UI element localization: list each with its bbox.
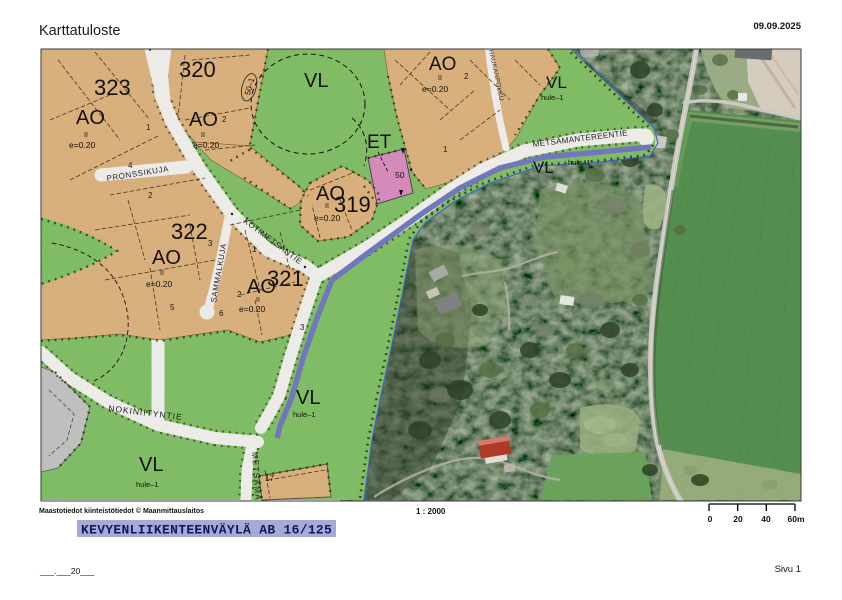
svg-text:AO: AO <box>152 247 181 269</box>
svg-text:VL: VL <box>139 454 163 476</box>
svg-text:3: 3 <box>208 239 213 248</box>
svg-text:17: 17 <box>265 474 274 483</box>
svg-text:hule–1: hule–1 <box>293 410 316 419</box>
svg-text:VL: VL <box>304 70 328 92</box>
svg-text:II: II <box>201 132 205 139</box>
svg-text:6: 6 <box>219 309 224 318</box>
svg-text:___.___20___: ___.___20___ <box>39 566 95 576</box>
svg-text:1: 1 <box>443 145 448 154</box>
svg-text:Karttatuloste: Karttatuloste <box>39 23 120 39</box>
svg-text:AO: AO <box>76 107 105 129</box>
svg-text:60m: 60m <box>787 514 804 524</box>
svg-text:20: 20 <box>733 514 743 524</box>
svg-text:VL: VL <box>533 158 554 177</box>
svg-text:II: II <box>84 132 88 139</box>
svg-text:e=0.20: e=0.20 <box>146 279 173 289</box>
svg-text:2: 2 <box>222 115 227 124</box>
svg-text:VL: VL <box>546 73 567 92</box>
svg-text:AO: AO <box>316 183 345 205</box>
svg-text:II: II <box>160 270 164 277</box>
svg-text:hule–1: hule–1 <box>568 158 591 167</box>
svg-text:II: II <box>256 297 260 304</box>
svg-text:40: 40 <box>761 514 771 524</box>
svg-text:320: 320 <box>179 57 216 82</box>
svg-text:1: 1 <box>252 245 257 254</box>
svg-text:AO: AO <box>429 54 456 75</box>
svg-text:e=0.20: e=0.20 <box>239 304 266 314</box>
svg-text:e=0.20: e=0.20 <box>193 140 220 150</box>
svg-text:50: 50 <box>395 170 405 180</box>
svg-text:3: 3 <box>300 323 305 332</box>
svg-text:hule–1: hule–1 <box>136 480 159 489</box>
svg-text:II: II <box>325 203 329 210</box>
svg-text:Maastotiedot kiinteistötiedot: Maastotiedot kiinteistötiedot © Maanmitt… <box>39 507 204 515</box>
svg-text:e=0.20: e=0.20 <box>69 140 96 150</box>
svg-text:4: 4 <box>128 161 133 170</box>
svg-text:II: II <box>438 75 442 82</box>
svg-text:e=0.20: e=0.20 <box>422 84 449 94</box>
svg-text:5: 5 <box>170 303 175 312</box>
svg-text:2: 2 <box>148 191 153 200</box>
svg-text:0: 0 <box>708 514 713 524</box>
svg-text:322: 322 <box>171 219 208 244</box>
svg-text:1 : 2000: 1 : 2000 <box>416 507 446 516</box>
svg-text:KEVYENLIIKENTEENVÄYLÄ AB 16/12: KEVYENLIIKENTEENVÄYLÄ AB 16/125 <box>81 523 332 538</box>
svg-text:ET: ET <box>367 132 392 153</box>
svg-text:VL: VL <box>296 387 320 409</box>
svg-text:09.09.2025: 09.09.2025 <box>753 21 801 32</box>
svg-text:AO: AO <box>189 109 218 131</box>
svg-text:2: 2 <box>464 72 469 81</box>
svg-text:Sivu 1: Sivu 1 <box>775 564 801 575</box>
svg-text:hule–1: hule–1 <box>541 93 564 102</box>
svg-text:323: 323 <box>94 75 131 100</box>
svg-text:2: 2 <box>237 290 242 299</box>
svg-text:1: 1 <box>146 123 151 132</box>
svg-text:AO: AO <box>247 276 276 298</box>
svg-text:e=0.20: e=0.20 <box>314 213 341 223</box>
